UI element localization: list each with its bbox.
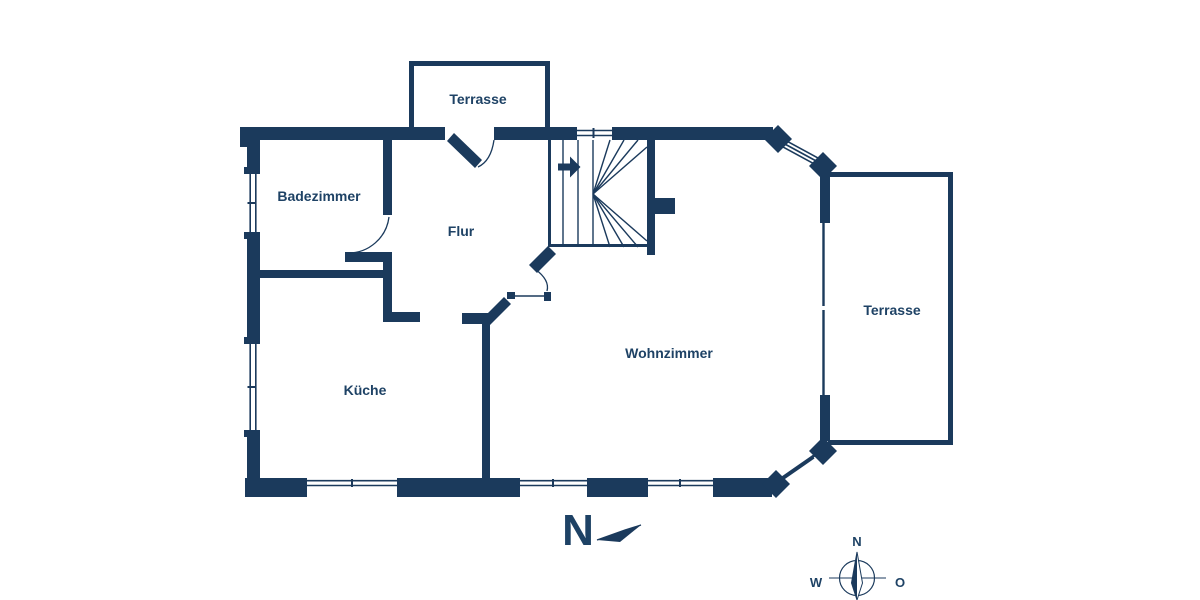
hallway-door xyxy=(481,246,556,327)
staircase xyxy=(548,138,675,255)
corner-pilaster xyxy=(240,127,248,147)
compass-rose-icon: N W O xyxy=(810,534,905,600)
room-label-wohnzimmer: Wohnzimmer xyxy=(625,345,713,361)
compass-west-label: W xyxy=(810,575,823,590)
exterior-walls xyxy=(240,127,773,497)
room-label-badezimmer: Badezimmer xyxy=(277,188,361,204)
north-letter: N xyxy=(562,506,594,555)
stair-direction-arrow-icon xyxy=(558,157,581,178)
floor-plan-drawing: Badezimmer Flur Küche Wohnzimmer Terrass… xyxy=(0,0,1200,600)
southeast-bay-window xyxy=(762,437,837,498)
north-arrow-icon: N xyxy=(562,506,641,555)
room-label-terrasse-right: Terrasse xyxy=(863,302,921,318)
compass-north-label: N xyxy=(852,534,861,549)
window-openings xyxy=(246,126,713,497)
bathroom-walls xyxy=(247,128,392,322)
room-label-flur: Flur xyxy=(448,223,475,239)
chimney-stub xyxy=(655,198,675,214)
kitchen-walls xyxy=(392,312,490,479)
compass-east-label: O xyxy=(895,575,905,590)
room-label-terrasse-top: Terrasse xyxy=(449,91,507,107)
bathroom-door-swing xyxy=(348,217,389,253)
northeast-bay-window xyxy=(764,125,837,180)
room-label-kueche: Küche xyxy=(344,382,387,398)
floor-plan-canvas: Badezimmer Flur Küche Wohnzimmer Terrass… xyxy=(0,0,1200,600)
